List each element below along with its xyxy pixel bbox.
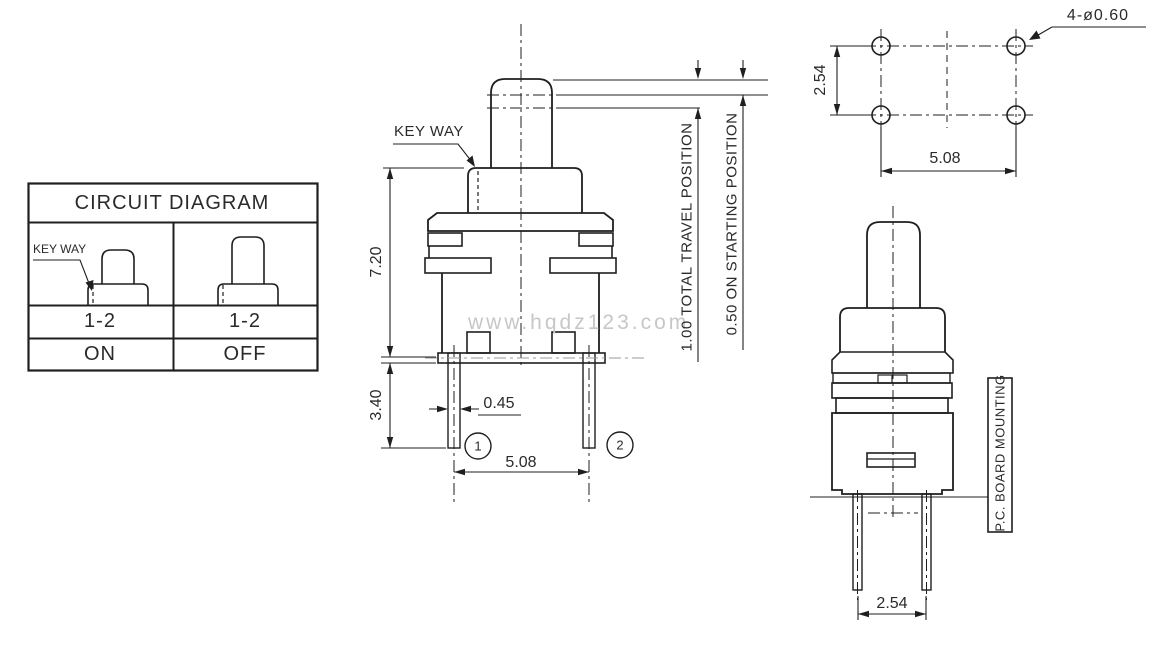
dim-pin-width: 0.45 — [483, 396, 514, 412]
pcb-mounting-label: P.C. BOARD MOUNTING — [994, 374, 1007, 531]
dim-pin-pitch-side: 2.54 — [876, 596, 907, 612]
dim-body-height: 7.20 — [369, 246, 385, 277]
table-pins-on: 1-2 — [84, 311, 116, 331]
front-keyway-label: KEY WAY — [394, 124, 464, 139]
side-view-lines — [810, 206, 1012, 620]
technical-drawing: CIRCUIT DIAGRAM KEY WAY 1-2 1-2 ON OFF w… — [0, 0, 1149, 646]
dim-col-pitch-holes: 5.08 — [929, 151, 960, 167]
table-pins-off: 1-2 — [229, 311, 261, 331]
hole-pattern-lines — [830, 27, 1146, 177]
dim-row-pitch-holes: 2.54 — [813, 64, 829, 95]
table-state-off: OFF — [224, 344, 267, 364]
watermark: www.hqdz123.com — [468, 312, 689, 333]
pin-2-label: 2 — [616, 439, 623, 452]
table-keyway-label: KEY WAY — [33, 243, 86, 255]
dim-pin-pitch-front: 5.08 — [505, 455, 536, 471]
starting-position-label: 0.50 ON STARTING POSITION — [725, 113, 740, 336]
dim-pin-length: 3.40 — [369, 389, 385, 420]
pin-1-label: 1 — [474, 440, 481, 453]
table-title: CIRCUIT DIAGRAM — [75, 193, 270, 213]
total-travel-label: 1.00 TOTAL TRAVEL POSITION — [680, 123, 695, 352]
front-view-lines — [381, 24, 768, 503]
hole-count-label: 4-ø0.60 — [1067, 8, 1129, 24]
table-state-on: ON — [84, 344, 116, 364]
